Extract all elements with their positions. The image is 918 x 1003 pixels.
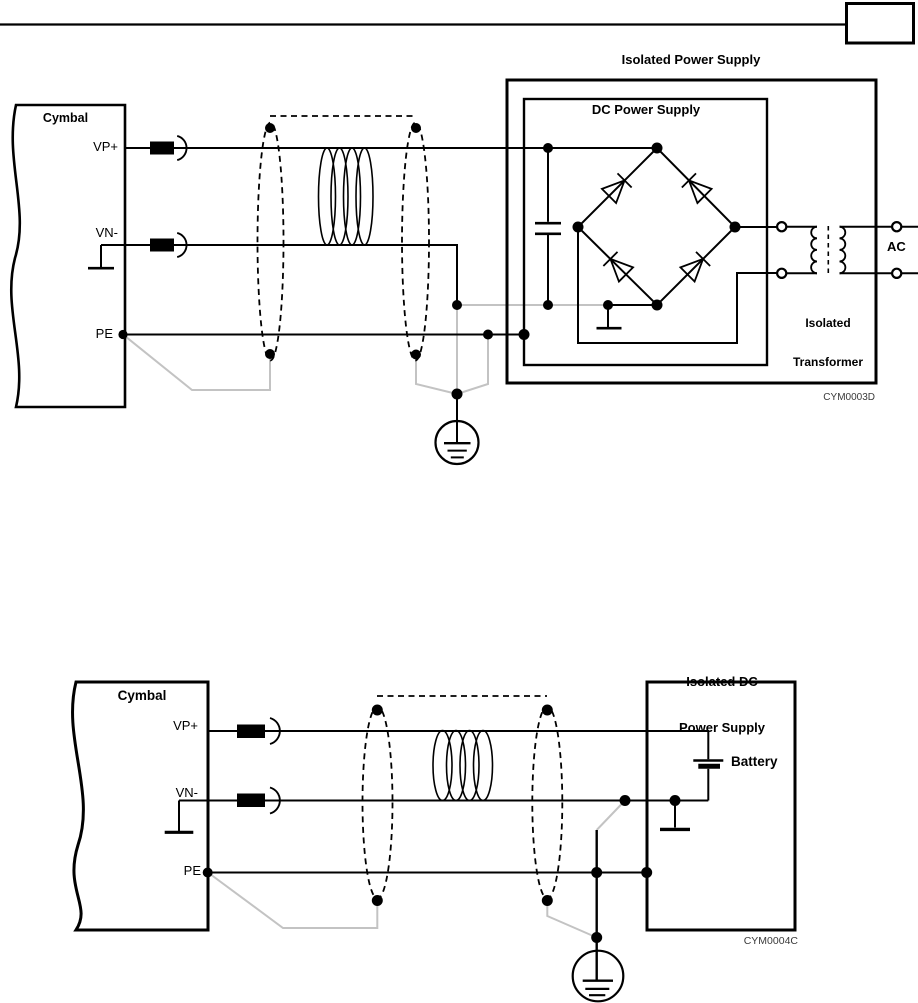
- twisted-pair-1: [319, 148, 374, 245]
- diagram2-title-line1: Isolated DC: [642, 674, 802, 689]
- junction-dots-2: [203, 705, 681, 944]
- junction-dots-1: [118, 123, 740, 400]
- figure-code-2: CYM0004C: [710, 936, 798, 947]
- vp-wire: [208, 731, 708, 759]
- pin-label-vp-1: VP+: [60, 140, 118, 154]
- bridge-rectifier: [578, 148, 735, 305]
- ac-label: AC: [887, 240, 906, 254]
- wires-2: [179, 731, 708, 980]
- drain-wires-2: [208, 801, 625, 938]
- drain-wires-1: [123, 305, 608, 394]
- protective-earth-icon-1: [436, 394, 479, 464]
- pin-label-vn-2: VN-: [140, 786, 198, 800]
- figure-code-1: CYM0003D: [790, 393, 875, 404]
- signal-ground-icon-1: [88, 245, 114, 268]
- capacitor-icon: [535, 148, 561, 305]
- pin-label-pe-1: PE: [55, 327, 113, 341]
- battery-label: Battery: [731, 755, 778, 770]
- isolated-transformer-label-line2: Transformer: [758, 356, 898, 369]
- signal-ground-icon-2: [165, 801, 194, 833]
- diagram1-title: Isolated Power Supply: [561, 53, 821, 67]
- diagram1-figure: [11, 80, 918, 464]
- terminal-circles-1: [777, 222, 901, 278]
- battery-icon: [693, 761, 723, 801]
- isolated-transformer-label-line1: Isolated: [758, 317, 898, 330]
- pin-label-vp-2: VP+: [140, 719, 198, 733]
- cable-shield-2: [363, 696, 563, 899]
- cymbal-label-2: Cymbal: [110, 689, 174, 704]
- pin-label-pe-2: PE: [143, 864, 201, 878]
- cymbal-label-1: Cymbal: [18, 112, 113, 126]
- dc-power-supply-label: DC Power Supply: [525, 103, 767, 117]
- pin-label-vn-1: VN-: [60, 226, 118, 240]
- manual-page: Isolated Power Supply DC Power Supply Cy…: [0, 0, 918, 1003]
- diagram2-title-line2: Power Supply: [642, 720, 802, 735]
- vn-wire: [101, 245, 457, 305]
- diagram-canvas: [0, 0, 918, 1003]
- protective-earth-icon-2: [573, 951, 624, 1002]
- transformer-icon: [811, 226, 845, 274]
- twisted-pair-2: [433, 731, 493, 801]
- header-corner-box: [847, 4, 914, 44]
